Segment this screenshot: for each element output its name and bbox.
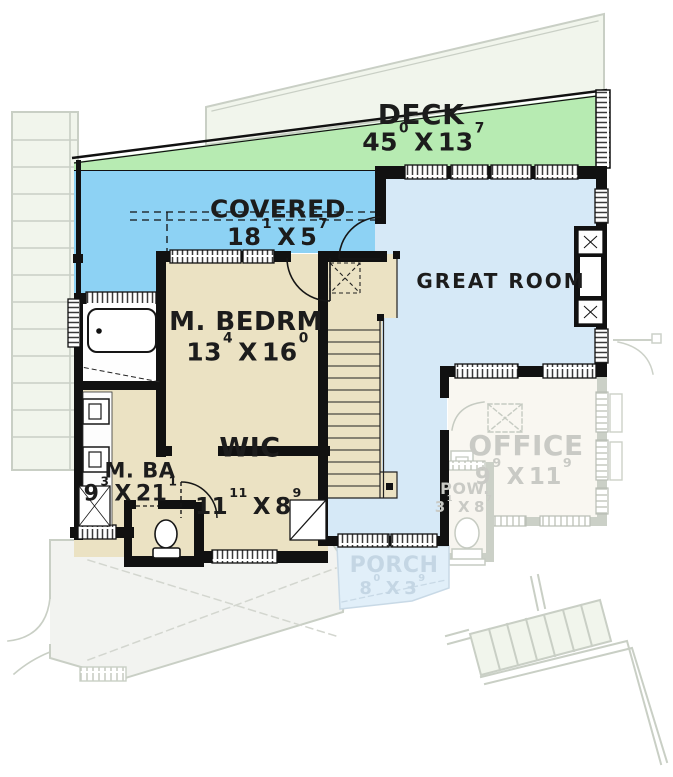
dim-sup: 7 (318, 217, 328, 232)
dim-separator: X (414, 128, 434, 157)
exterior-stairs-left-icon (12, 112, 78, 470)
deck-railing-icon (596, 90, 610, 168)
deck-label: DECK (378, 101, 465, 129)
dim-sup: 9 (563, 455, 572, 470)
powder-dims: 31X87 (435, 499, 493, 515)
dim-sup: 3 (100, 474, 109, 488)
dim-value: 18 (227, 223, 261, 251)
dim-sup: 0 (373, 573, 380, 584)
dim-value: 13 (186, 338, 222, 367)
dim-sup: 1 (262, 217, 272, 232)
master-bath-label: M. BA (105, 461, 176, 482)
dim-separator: X (507, 464, 525, 490)
dim-sup: 7 (475, 121, 485, 137)
dim-value: 9 (84, 482, 100, 507)
entry-door-right-icon (614, 334, 661, 374)
dim-sup: 1 (168, 474, 177, 488)
dim-separator: X (253, 494, 271, 520)
dim-sup: 9 (418, 573, 425, 584)
wic-dims: 1111X89 (195, 495, 303, 519)
door-arc-lower-left-icon (8, 598, 50, 641)
dim-sup: 9 (492, 455, 501, 470)
floor-plan: DECK 450X137 COVERED 181X57 GREAT ROOM M… (0, 0, 673, 777)
dim-value: 45 (362, 128, 398, 157)
exterior-stairs-lower-right-icon (446, 575, 667, 764)
dim-value: 3 (435, 498, 446, 516)
great-room-label: GREAT ROOM (416, 271, 585, 291)
wic-label: WIC (219, 435, 280, 462)
dim-value: 8 (474, 498, 485, 516)
dim-value: 21 (136, 482, 168, 507)
dim-sup: 11 (229, 485, 248, 500)
covered-dims: 181X57 (227, 225, 329, 249)
floorplan-drawing (0, 0, 673, 777)
porch-dims: 80X39 (359, 580, 426, 598)
dim-value: 11 (195, 494, 228, 520)
dim-value: 3 (404, 578, 417, 599)
dim-sup: 0 (299, 331, 309, 347)
dim-separator: X (277, 223, 296, 251)
sink-icon (83, 399, 109, 424)
dim-separator: X (114, 482, 131, 507)
dim-sup: 1 (447, 493, 453, 503)
dim-separator: X (458, 498, 470, 516)
master-bath-dims: 93X211 (84, 482, 179, 505)
dim-value: 11 (529, 464, 562, 490)
dim-separator: X (386, 578, 400, 599)
dim-sup: 9 (293, 485, 302, 500)
dim-value: 5 (300, 223, 317, 251)
dim-sup: 4 (223, 331, 233, 347)
dim-sup: 0 (399, 121, 409, 137)
dim-value: 8 (359, 578, 372, 599)
deck-dims: 450X137 (362, 130, 486, 155)
dim-value: 13 (438, 128, 474, 157)
master-bedroom-dims: 134X160 (186, 340, 310, 365)
dim-separator: X (238, 338, 258, 367)
dim-value: 8 (275, 494, 292, 520)
deck-post-icon (73, 254, 83, 263)
dim-value: 16 (262, 338, 298, 367)
dim-sup: 7 (486, 493, 492, 503)
